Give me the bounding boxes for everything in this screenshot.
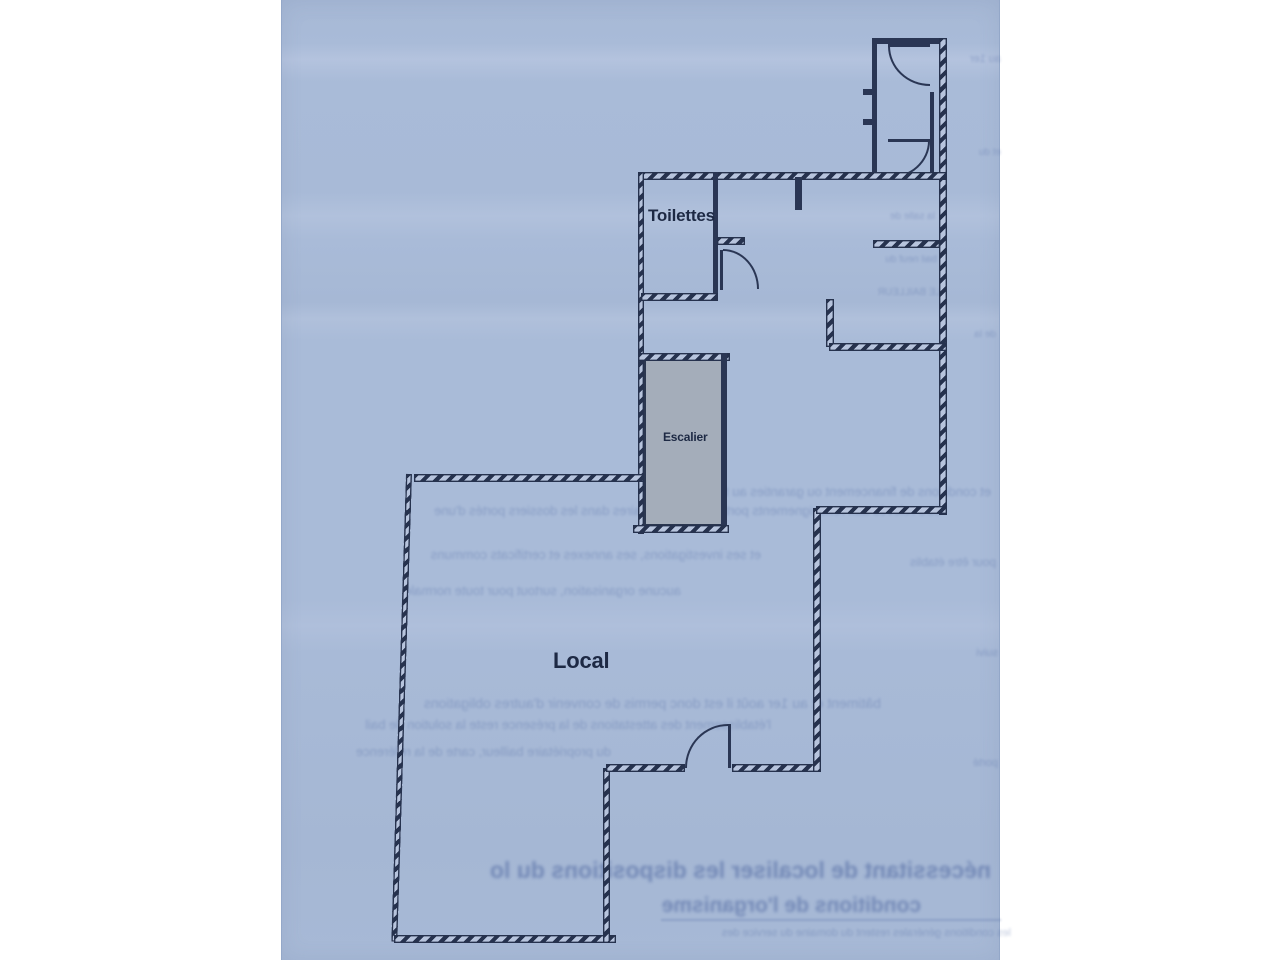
wall-segment bbox=[939, 38, 947, 515]
door-swing-arc bbox=[685, 724, 728, 768]
door-leaf bbox=[728, 724, 731, 768]
wall-segment bbox=[826, 299, 834, 347]
wall-segment bbox=[872, 38, 877, 180]
wall-segment bbox=[414, 474, 644, 482]
wall-segment bbox=[717, 237, 745, 245]
wall-fixture-tick bbox=[863, 89, 875, 95]
wall-segment bbox=[641, 172, 947, 180]
wall-segment bbox=[641, 293, 718, 301]
wall-segment bbox=[795, 177, 802, 210]
wall-segment bbox=[732, 764, 820, 772]
wall-segment bbox=[638, 353, 730, 361]
wall-segment bbox=[816, 506, 947, 514]
wall-segment bbox=[633, 525, 729, 533]
wall-segment bbox=[829, 343, 947, 351]
wall-segment bbox=[606, 764, 685, 772]
wall-segment bbox=[391, 474, 412, 942]
wall-fixture-tick bbox=[863, 119, 875, 125]
wall-segment bbox=[721, 353, 727, 533]
photo-of-scanned-document: au 1er et du la salle de bail neuf du LE… bbox=[0, 0, 1280, 960]
wall-segment bbox=[873, 240, 940, 248]
wall-segment bbox=[813, 508, 821, 772]
room-label-local: Local bbox=[553, 648, 609, 674]
room-label-escalier: Escalier bbox=[663, 430, 707, 444]
blue-paper-sheet: au 1er et du la salle de bail neuf du LE… bbox=[281, 0, 1000, 960]
door-swing-arc bbox=[723, 249, 759, 289]
wall-segment bbox=[603, 768, 610, 943]
floor-plan: Toilettes Escalier Local bbox=[282, 0, 999, 960]
wall-segment bbox=[394, 935, 616, 943]
door-swing-arc bbox=[888, 46, 930, 86]
wall-segment bbox=[713, 172, 718, 296]
room-label-toilettes: Toilettes bbox=[648, 206, 715, 226]
wall-column-bar bbox=[930, 92, 934, 176]
